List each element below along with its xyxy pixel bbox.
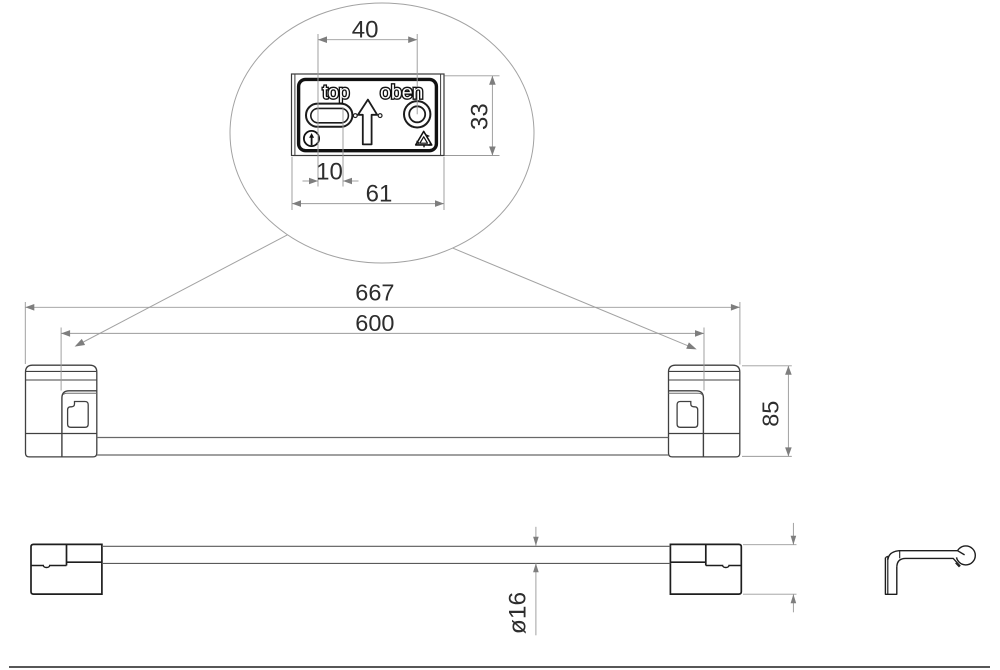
svg-text:85: 85 (758, 401, 784, 427)
svg-text:ø16: ø16 (505, 592, 532, 634)
svg-text:33: 33 (466, 103, 493, 130)
svg-text:600: 600 (355, 310, 394, 336)
svg-text:10: 10 (316, 159, 343, 186)
svg-text:top: top (323, 82, 350, 104)
svg-text:667: 667 (355, 279, 394, 305)
svg-text:61: 61 (366, 180, 393, 207)
svg-text:40: 40 (352, 17, 379, 44)
svg-text:oben: oben (380, 82, 423, 104)
